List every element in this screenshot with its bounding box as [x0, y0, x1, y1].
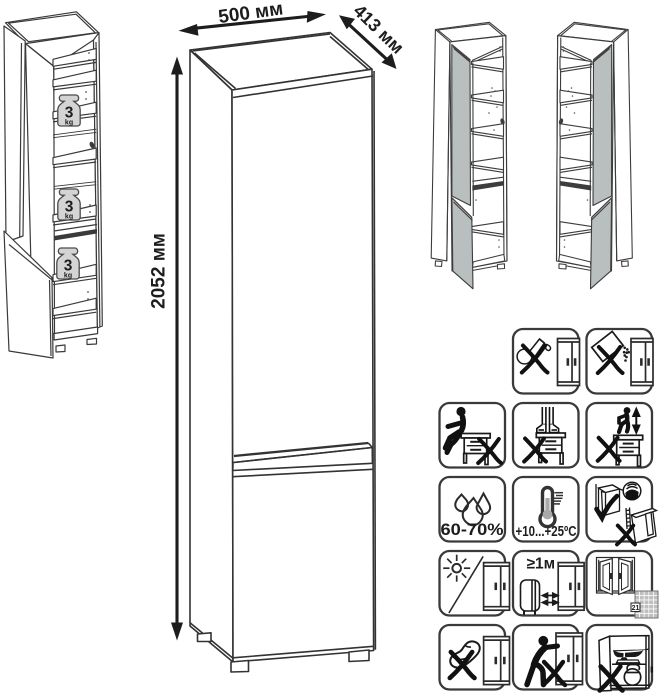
svg-text:≥1м: ≥1м — [527, 556, 556, 573]
svg-text:kg: kg — [64, 273, 72, 280]
svg-text:2052 мм: 2052 мм — [149, 233, 170, 309]
svg-text:413 мм: 413 мм — [350, 1, 408, 58]
svg-text:60-70%: 60-70% — [441, 520, 504, 539]
svg-text:21: 21 — [632, 605, 640, 612]
svg-text:kg: kg — [65, 214, 73, 221]
svg-text:+10...+25ºC: +10...+25ºC — [516, 524, 577, 540]
svg-text:kg: kg — [65, 120, 73, 127]
